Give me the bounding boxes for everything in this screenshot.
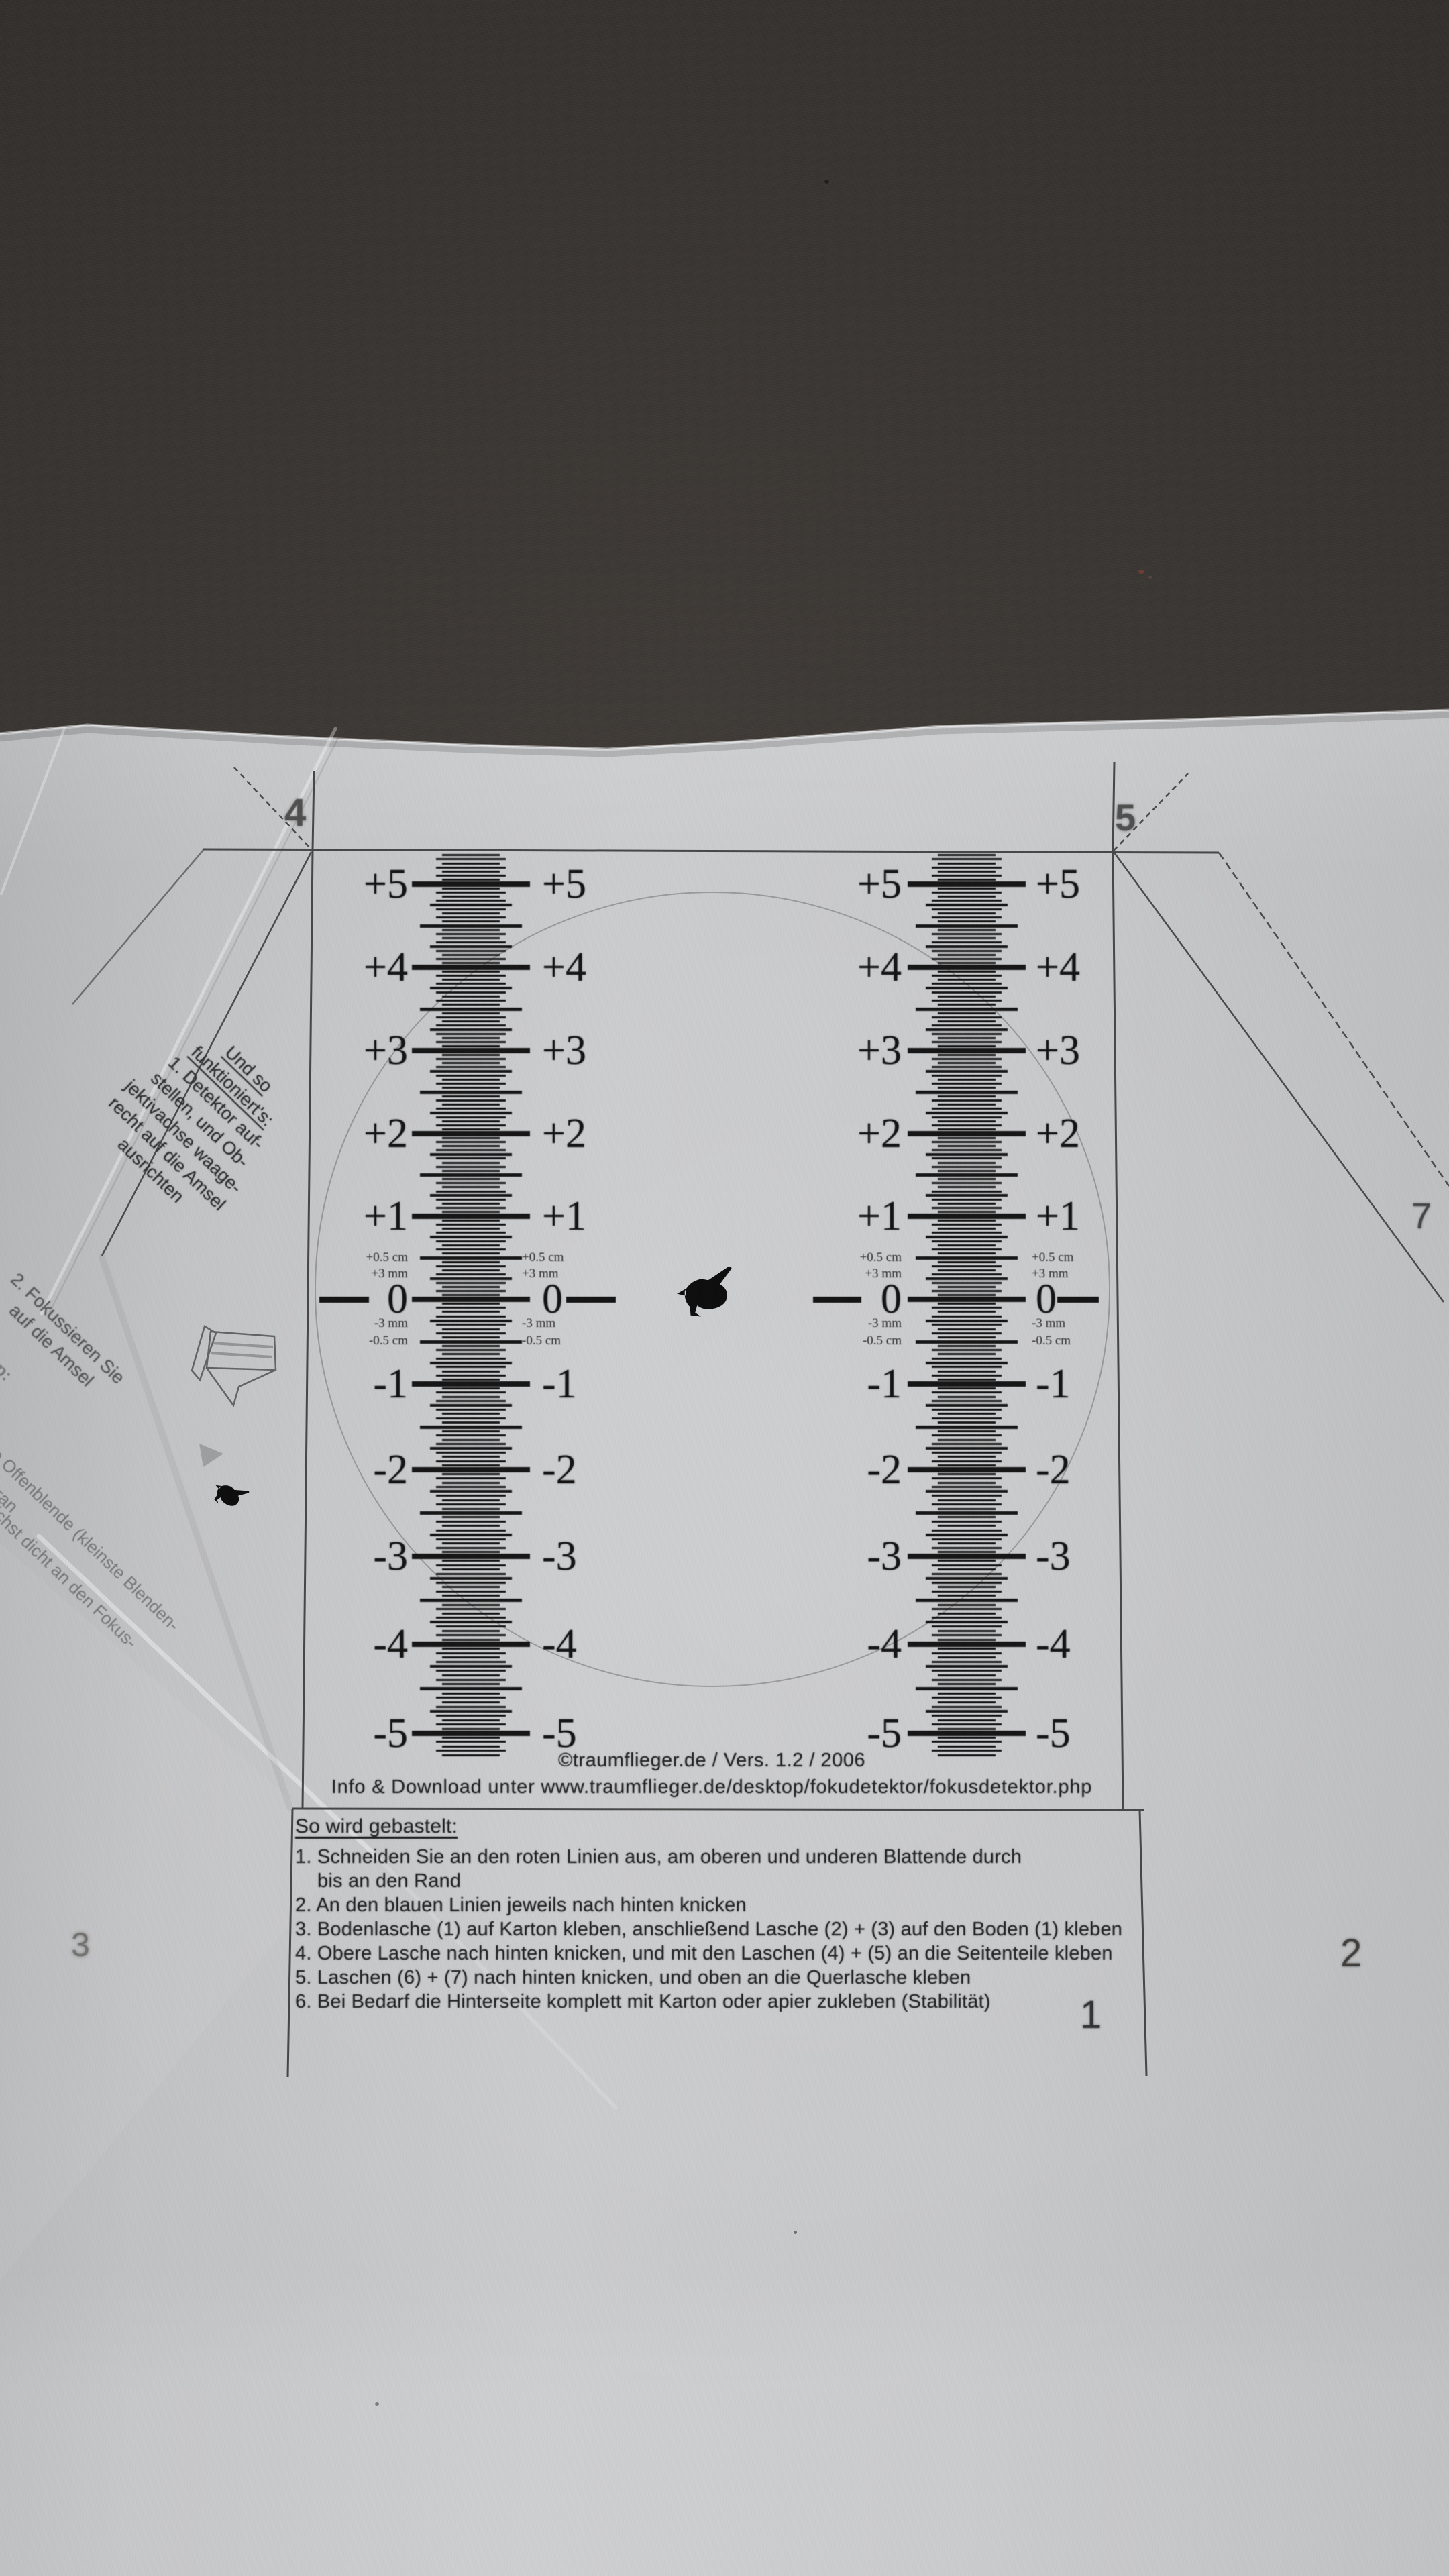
ruler-tick <box>938 1613 996 1615</box>
scale-major-label: -4 <box>778 1616 902 1672</box>
ruler-tick <box>926 1070 1008 1073</box>
ruler-tick <box>932 1679 1002 1681</box>
ruler-tick <box>436 983 506 985</box>
ruler-tick <box>938 1178 996 1180</box>
ruler-tick <box>926 987 1008 989</box>
ruler-tick <box>932 1538 1002 1540</box>
flap-number-4: 4 <box>284 790 306 835</box>
ruler-tick <box>926 1028 1008 1031</box>
ruler-tick <box>932 1324 1002 1326</box>
ruler-tick <box>932 991 1002 994</box>
ruler-tick <box>932 1149 1002 1151</box>
ruler-tick <box>436 1116 506 1118</box>
ruler-tick <box>442 863 500 865</box>
scale-major-label: +1 <box>284 1188 408 1244</box>
ruler-tick <box>442 1396 500 1398</box>
ruler-tick <box>436 1741 506 1743</box>
ruler-tick <box>932 1024 1002 1026</box>
ruler-tick <box>442 1186 500 1188</box>
ruler-tick <box>436 1182 506 1184</box>
ruler-tick <box>436 1634 506 1636</box>
ruler-tick <box>932 1443 1002 1445</box>
ruler-tick <box>916 924 1018 928</box>
ruler-tick <box>442 1178 500 1180</box>
scale-major-label: -2 <box>1036 1442 1163 1498</box>
ruler-tick <box>932 1282 1002 1284</box>
ruler-tick <box>938 1371 996 1373</box>
ruler-tick <box>442 1516 500 1518</box>
ruler-tick <box>436 1417 506 1419</box>
ruler-tick <box>442 1269 500 1271</box>
ruler-tick <box>908 1131 1026 1136</box>
instruction-item: 1. Schneiden Sie an den roten Linien aus… <box>295 1846 1022 1868</box>
ruler-tick <box>436 1547 506 1549</box>
zero-dash <box>319 1297 369 1303</box>
ruler-tick <box>938 1054 996 1056</box>
ruler-tick <box>938 1568 996 1570</box>
scale-major-label: -3 <box>778 1528 902 1585</box>
ruler-tick <box>442 1244 500 1246</box>
ruler-tick <box>442 1639 500 1641</box>
ruler-tick <box>932 1486 1002 1488</box>
ruler-tick <box>932 1723 1002 1725</box>
scale-major-label: -1 <box>542 1356 669 1412</box>
ruler-tick <box>938 1551 996 1553</box>
ruler-tick <box>932 1116 1002 1118</box>
ruler-tick <box>932 1191 1002 1193</box>
scale-major-label: +3 <box>542 1022 669 1079</box>
ruler-tick <box>938 1037 996 1039</box>
ruler-tick <box>436 1503 506 1505</box>
ruler-tick <box>442 1087 500 1089</box>
ruler-tick <box>932 1634 1002 1636</box>
ruler-tick <box>926 1534 1008 1536</box>
ruler-tick <box>938 854 996 856</box>
ruler-tick <box>430 1534 512 1536</box>
ruler-tick <box>436 900 506 902</box>
ruler-tick <box>926 1577 1008 1580</box>
ruler-tick <box>436 867 506 869</box>
instruction-item: 6. Bei Bedarf die Hinterseite komplett m… <box>295 1991 991 2013</box>
ruler-tick <box>908 1048 1026 1053</box>
ruler-tick <box>436 1124 506 1126</box>
ruler-tick <box>916 1091 1018 1094</box>
ruler-tick <box>412 1554 530 1559</box>
ruler-tick <box>442 920 500 922</box>
ruler-tick <box>938 1345 996 1347</box>
ruler-tick <box>442 1701 500 1703</box>
ruler-tick <box>932 1207 1002 1209</box>
ruler-tick <box>442 1604 500 1606</box>
ruler-tick <box>932 1391 1002 1393</box>
ruler-tick <box>442 896 500 898</box>
ruler-tick <box>442 1560 500 1562</box>
download-info-line: Info & Download unter www.traumflieger.d… <box>292 1776 1131 1799</box>
ruler-tick <box>938 1630 996 1632</box>
ruler-tick <box>932 1349 1002 1351</box>
ruler-tick <box>938 1648 996 1650</box>
ruler-tick <box>908 1381 1026 1387</box>
ruler-tick <box>932 1652 1002 1654</box>
ruler-tick <box>442 937 500 939</box>
ruler-tick <box>938 871 996 873</box>
ruler-tick <box>938 1004 996 1006</box>
ruler-tick <box>938 1269 996 1271</box>
ruler-tick <box>436 1564 506 1566</box>
ruler-tick <box>436 1391 506 1393</box>
scale-major-label: +4 <box>778 939 902 996</box>
ruler-tick <box>436 1375 506 1377</box>
ruler-tick <box>436 1149 506 1151</box>
scale-fine-label: +0.5 cm <box>287 1249 408 1267</box>
ruler-tick <box>442 879 500 881</box>
ruler-tick <box>932 1564 1002 1566</box>
ruler-tick <box>430 1070 512 1073</box>
ruler-tick <box>430 1621 512 1623</box>
ruler-tick <box>938 954 996 956</box>
ruler-tick <box>932 1066 1002 1068</box>
ruler-tick <box>436 1486 506 1488</box>
scale-fine-label: +3 mm <box>781 1265 902 1283</box>
ruler-tick <box>442 1045 500 1047</box>
ruler-tick <box>442 1693 500 1695</box>
ruler-tick <box>442 1328 500 1330</box>
ruler-tick <box>436 1400 506 1402</box>
ruler-tick <box>938 1413 996 1415</box>
ruler-tick <box>436 1538 506 1540</box>
ruler-tick <box>442 1421 500 1424</box>
ruler-tick <box>442 1228 500 1230</box>
ruler-tick <box>436 950 506 952</box>
ruler-tick <box>436 1460 506 1462</box>
ruler-tick <box>932 1075 1002 1077</box>
zero-dash <box>566 1297 616 1303</box>
ruler-tick <box>442 1430 500 1432</box>
scale-major-label: -2 <box>542 1442 669 1498</box>
ruler-tick <box>938 1639 996 1641</box>
ruler-tick <box>442 1456 500 1458</box>
ruler-tick <box>932 1460 1002 1462</box>
ruler-tick <box>436 1224 506 1226</box>
scale-major-label: +1 <box>1036 1188 1163 1244</box>
ruler-tick <box>932 892 1002 894</box>
ruler-tick <box>430 1153 512 1156</box>
scale-fine-label: +0.5 cm <box>781 1249 902 1267</box>
ruler-tick <box>442 1054 500 1056</box>
ruler-tick <box>938 1456 996 1458</box>
ruler-tick <box>436 1066 506 1068</box>
ruler-tick <box>938 929 996 931</box>
ruler-tick <box>442 962 500 964</box>
ruler-tick <box>932 1108 1002 1110</box>
side-note-focus: 2. Fokussieren Sieauf die Amsel <box>0 1265 133 1409</box>
ruler-tick <box>932 1661 1002 1663</box>
ruler-tick <box>436 875 506 877</box>
ruler-tick <box>436 1617 506 1619</box>
ruler-tick <box>938 879 996 881</box>
ruler-tick <box>938 1674 996 1676</box>
ruler-tick <box>442 1336 500 1338</box>
ruler-tick <box>932 941 1002 943</box>
ruler-tick <box>926 1665 1008 1668</box>
ruler-tick <box>420 1511 522 1515</box>
scale-fine-label: -3 mm <box>522 1315 629 1332</box>
ruler-tick <box>436 941 506 943</box>
ruler-tick <box>932 1290 1002 1292</box>
ruler-tick <box>436 1324 506 1326</box>
flap-number-7: 7 <box>1411 1195 1432 1237</box>
ruler-tick <box>430 1710 512 1713</box>
ruler-tick <box>932 1529 1002 1532</box>
scale-fine-label: -3 mm <box>781 1315 902 1332</box>
ruler-tick <box>938 1162 996 1164</box>
flap-number-1: 1 <box>1080 1992 1102 2037</box>
ruler-tick <box>938 1719 996 1721</box>
scale-major-label: +5 <box>1036 856 1163 912</box>
ruler-tick <box>932 1033 1002 1035</box>
ruler-tick <box>436 1099 506 1102</box>
ruler-tick <box>436 1000 506 1002</box>
ruler-tick <box>430 1404 512 1407</box>
zero-dash <box>1057 1297 1099 1303</box>
ruler-tick <box>916 1340 1018 1344</box>
ruler-tick <box>932 1715 1002 1717</box>
scale-major-label: +4 <box>542 939 669 996</box>
ruler-tick <box>908 1642 1026 1647</box>
scale-major-label: +2 <box>778 1106 902 1162</box>
ruler-tick <box>442 1499 500 1501</box>
ruler-tick <box>938 1211 996 1213</box>
ruler-tick <box>938 996 996 998</box>
ruler-tick <box>932 1417 1002 1419</box>
ruler-tick <box>436 1625 506 1627</box>
ruler-tick <box>442 1613 500 1615</box>
ruler-tick <box>442 1674 500 1676</box>
ruler-tick <box>442 971 500 973</box>
ruler-tick <box>916 1426 1018 1429</box>
ruler-tick <box>436 1443 506 1445</box>
ruler-tick <box>926 1153 1008 1156</box>
ruler-tick <box>442 1379 500 1381</box>
ruler-tick <box>436 1452 506 1454</box>
ruler-tick <box>436 1108 506 1110</box>
ruler-tick <box>938 1228 996 1230</box>
ruler-tick <box>908 1467 1026 1472</box>
ruler-tick <box>412 1731 530 1736</box>
ruler-tick <box>932 916 1002 918</box>
ruler-tick <box>436 1477 506 1479</box>
ruler-tick <box>932 1141 1002 1143</box>
ruler-tick <box>442 1095 500 1097</box>
ruler-tick <box>442 1104 500 1106</box>
ruler-tick <box>932 1157 1002 1159</box>
ruler-tick <box>442 1137 500 1139</box>
instruction-item: bis an den Rand <box>295 1870 461 1892</box>
ruler-tick <box>436 1652 506 1654</box>
scale-major-label: +5 <box>284 856 408 912</box>
ruler-tick <box>938 1203 996 1205</box>
scale-major-label: -2 <box>284 1442 408 1498</box>
ruler-tick <box>932 1182 1002 1184</box>
ruler-tick <box>436 908 506 910</box>
ruler-tick <box>436 1495 506 1497</box>
ruler-tick <box>412 1467 530 1472</box>
ruler-tick <box>442 1311 500 1313</box>
ruler-tick <box>932 1307 1002 1309</box>
scale-major-label: +3 <box>1036 1022 1163 1079</box>
ruler-tick <box>442 1508 500 1510</box>
ruler-tick <box>436 1273 506 1275</box>
ruler-tick <box>436 1157 506 1159</box>
ruler-tick <box>442 1170 500 1172</box>
ruler-tick <box>938 937 996 939</box>
ruler-tick <box>436 1679 506 1681</box>
ruler-tick <box>436 1232 506 1234</box>
ruler-tick <box>938 1286 996 1288</box>
ruler-tick <box>926 1710 1008 1713</box>
scale-fine-label: -3 mm <box>1032 1315 1139 1332</box>
ruler-tick <box>938 1128 996 1130</box>
ruler-tick <box>932 858 1002 860</box>
ruler-tick <box>932 958 1002 960</box>
ruler-tick <box>938 1303 996 1305</box>
ruler-tick <box>436 1166 506 1168</box>
ruler-tick <box>436 1697 506 1699</box>
ruler-tick <box>442 1551 500 1553</box>
ruler-tick <box>442 1211 500 1213</box>
ruler-tick <box>938 1586 996 1588</box>
ruler-tick <box>938 1560 996 1562</box>
ruler-tick <box>436 1058 506 1060</box>
ruler-tick <box>932 867 1002 869</box>
ruler-tick <box>442 1568 500 1570</box>
ruler-tick <box>938 1499 996 1501</box>
ruler-tick <box>908 965 1026 970</box>
ruler-tick <box>412 1048 530 1053</box>
ruler-tick <box>926 1404 1008 1407</box>
ruler-tick <box>932 950 1002 952</box>
ruler-tick <box>932 1706 1002 1708</box>
ruler-tick <box>938 1120 996 1122</box>
scale-major-label: -2 <box>778 1442 902 1498</box>
ruler-tick <box>436 1409 506 1411</box>
ruler-tick <box>442 1542 500 1544</box>
ruler-tick <box>436 892 506 894</box>
ruler-tick <box>938 1693 996 1695</box>
ruler-tick <box>430 1028 512 1031</box>
ruler-tick <box>436 1358 506 1360</box>
ruler-tick <box>412 1642 530 1647</box>
ruler-tick <box>436 1282 506 1284</box>
ruler-tick <box>926 1362 1008 1364</box>
ruler-tick <box>932 1265 1002 1267</box>
ruler-tick <box>442 1439 500 1441</box>
ruler-tick <box>436 858 506 860</box>
ruler-tick <box>436 1706 506 1708</box>
ruler-tick <box>938 1439 996 1441</box>
ruler-tick <box>932 1434 1002 1436</box>
ruler-tick <box>938 1595 996 1597</box>
ruler-tick <box>430 1236 512 1238</box>
ruler-tick <box>442 1120 500 1122</box>
ruler-tick <box>932 1366 1002 1368</box>
scale-major-label: +2 <box>542 1106 669 1162</box>
printed-template: 4 5 7 3 2 1 +5+5+4+4+3+3+2+2+1+100-1-1-2… <box>0 0 1449 2576</box>
scale-major-label: +1 <box>542 1188 669 1244</box>
ruler-tick <box>938 1508 996 1510</box>
ruler-tick <box>442 1413 500 1415</box>
scale-major-label: +2 <box>1036 1106 1163 1162</box>
ruler-tick <box>436 1191 506 1193</box>
ruler-tick <box>932 1041 1002 1043</box>
ruler-tick <box>420 1091 522 1094</box>
ruler-tick <box>436 1521 506 1523</box>
ruler-tick <box>908 1297 1026 1302</box>
ruler-tick <box>412 881 530 887</box>
ruler-tick <box>938 962 996 964</box>
ruler-tick <box>932 1697 1002 1699</box>
ruler-tick <box>932 1083 1002 1085</box>
ruler-tick <box>442 1525 500 1527</box>
scale-major-label: -1 <box>284 1356 408 1412</box>
ruler-tick <box>938 1387 996 1389</box>
ruler-tick <box>442 1656 500 1658</box>
ruler-tick <box>436 1290 506 1292</box>
ruler-tick <box>442 1648 500 1650</box>
ruler-tick <box>938 1145 996 1147</box>
zero-dash <box>813 1297 861 1303</box>
ruler-tick <box>916 1256 1018 1260</box>
ruler-tick <box>932 975 1002 977</box>
scale-major-label: -1 <box>778 1356 902 1412</box>
ruler-tick <box>442 1062 500 1064</box>
copyright-line: ©traumflieger.de / Vers. 1.2 / 2006 <box>292 1750 1131 1772</box>
scale-major-label: -1 <box>1036 1356 1163 1412</box>
ruler-tick <box>926 1277 1008 1280</box>
ruler-tick <box>436 1366 506 1368</box>
ruler-tick <box>420 1173 522 1177</box>
ruler-tick <box>926 1621 1008 1623</box>
ruler-tick <box>442 979 500 981</box>
scale-major-label: +4 <box>284 939 408 996</box>
ruler-tick <box>916 1173 1018 1177</box>
ruler-tick <box>442 854 500 856</box>
ruler-tick <box>442 1012 500 1014</box>
ruler-tick <box>938 1020 996 1022</box>
ruler-tick <box>932 1099 1002 1102</box>
ruler-tick <box>932 900 1002 902</box>
ruler-tick <box>436 1582 506 1584</box>
ruler-tick <box>442 912 500 914</box>
ruler-tick <box>932 1400 1002 1402</box>
ruler-tick <box>932 1608 1002 1610</box>
ruler-tick <box>430 1577 512 1580</box>
scale-fine-label: -0.5 cm <box>781 1332 902 1350</box>
ruler-tick <box>926 1112 1008 1114</box>
scale-major-label: +4 <box>1036 939 1163 996</box>
scale-fine-label: +3 mm <box>287 1265 408 1283</box>
scale-major-label: +3 <box>284 1022 408 1079</box>
ruler-tick <box>436 1041 506 1043</box>
ruler-tick <box>420 1340 522 1344</box>
ruler-tick <box>436 1307 506 1309</box>
ruler-tick <box>412 1131 530 1136</box>
photo-of-paper-template: 4 5 7 3 2 1 +5+5+4+4+3+3+2+2+1+100-1-1-2… <box>0 0 1449 2576</box>
ruler-tick <box>442 1261 500 1263</box>
ruler-tick <box>938 1683 996 1685</box>
ruler-tick <box>436 916 506 918</box>
ruler-tick <box>938 971 996 973</box>
